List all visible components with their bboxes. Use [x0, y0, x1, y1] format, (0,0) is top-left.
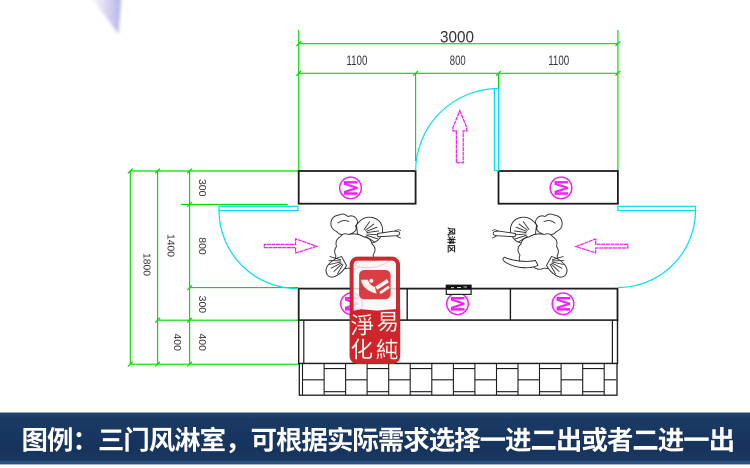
svg-text:1400: 1400 — [165, 234, 176, 257]
svg-text:400: 400 — [196, 333, 207, 351]
svg-text:300: 300 — [196, 296, 207, 314]
svg-text:M: M — [551, 180, 573, 196]
svg-text:800: 800 — [450, 53, 466, 69]
svg-text:M: M — [341, 180, 363, 196]
svg-text:3000: 3000 — [440, 27, 474, 46]
svg-text:1100: 1100 — [346, 53, 367, 69]
svg-text:300: 300 — [196, 179, 207, 197]
svg-text:1100: 1100 — [548, 53, 569, 69]
svg-text:M: M — [553, 296, 575, 312]
svg-text:M: M — [448, 296, 470, 312]
svg-text:1800: 1800 — [140, 253, 151, 276]
svg-text:400: 400 — [171, 333, 182, 351]
svg-text:800: 800 — [196, 237, 207, 255]
